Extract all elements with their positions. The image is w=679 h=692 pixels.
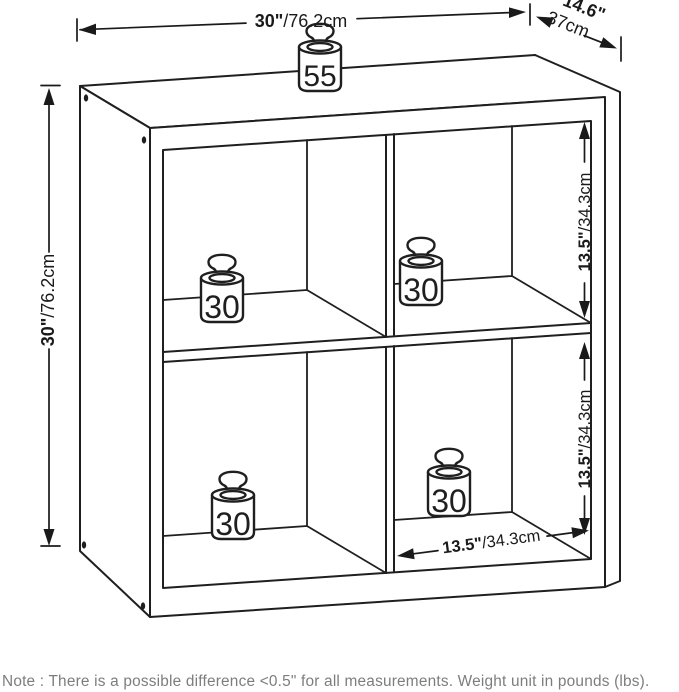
weight-value-cube-top-left: 30 (204, 289, 240, 325)
dim-height-left-label: 30"/76.2cm (38, 254, 58, 347)
left-side-panel (80, 86, 150, 617)
screw-hole (141, 602, 145, 609)
arrow-up-icon (44, 88, 55, 105)
dim-depth-top: 14.6" 37cm (536, 0, 621, 61)
dim-width-top: 30"/76.2cm (77, 4, 530, 41)
arrow-down-icon (44, 529, 55, 546)
arrow-left-icon (79, 24, 96, 35)
arrow-down-right-icon (599, 37, 617, 48)
weight-value-top: 55 (303, 60, 336, 93)
dim-width-top-label: 30"/76.2cm (255, 11, 348, 31)
arrow-right-icon (509, 7, 526, 18)
note-text: Note : There is a possible difference <0… (2, 673, 650, 690)
dim-height-left: 30"/76.2cm (38, 86, 60, 547)
product-dimension-diagram: 55 30 30 30 30 30"/76.2cm 14.6" 37cm (0, 0, 679, 692)
screw-hole (82, 541, 86, 548)
screw-hole (142, 136, 146, 143)
screw-hole (84, 94, 88, 101)
weight-value-cube-bottom-right: 30 (431, 483, 467, 519)
diagram-canvas: 55 30 30 30 30 30"/76.2cm 14.6" 37cm (0, 0, 679, 692)
dim-cube-height-top-label: 13.5"/34.3cm (576, 173, 594, 272)
dim-cube-height-bottom-label: 13.5"/34.3cm (576, 390, 594, 489)
weight-value-cube-bottom-left: 30 (215, 506, 251, 542)
weight-value-cube-top-right: 30 (403, 272, 439, 308)
